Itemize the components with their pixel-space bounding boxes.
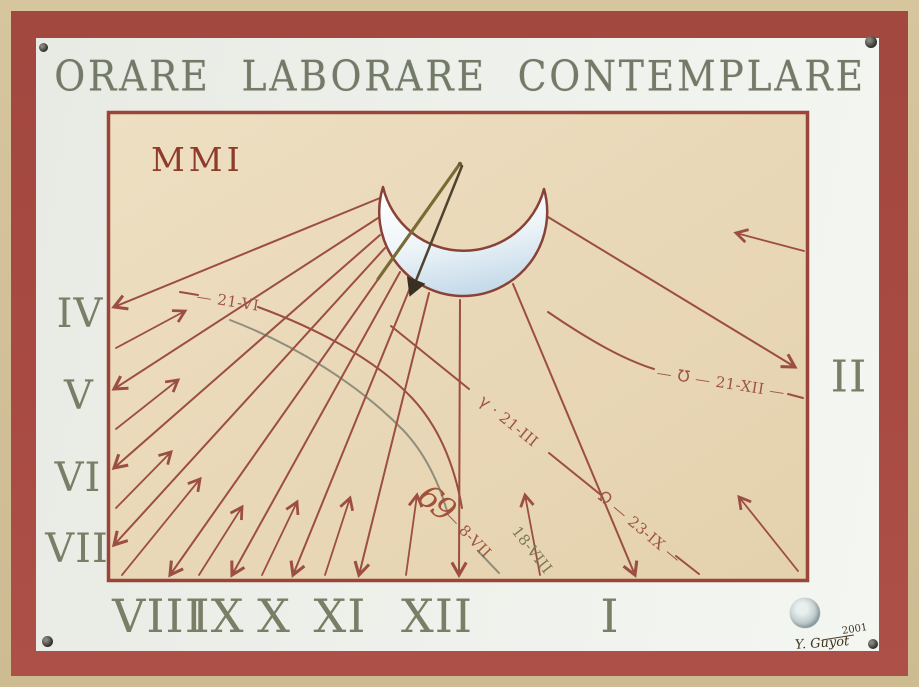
year-inscription: MMI (151, 140, 244, 179)
hour-numeral-VIII: VIII (112, 589, 204, 643)
label-dash: — (656, 363, 679, 384)
label-dash: — (195, 287, 218, 308)
dial-face-drawing (0, 0, 919, 687)
label-dash: — (763, 380, 786, 401)
hour-numeral-V: V (64, 373, 94, 419)
hour-numeral-I: I (600, 589, 619, 643)
hour-numeral-XII: XII (401, 589, 473, 643)
shell-medallion (790, 598, 820, 628)
hour-numeral-II: II (831, 352, 868, 403)
hour-numeral-VI: VI (55, 455, 102, 501)
hour-numeral-VII: VII (45, 526, 109, 572)
hour-numeral-X: X (257, 589, 291, 643)
hour-numeral-IX: IX (192, 589, 245, 643)
hour-numeral-XI: XI (314, 589, 367, 643)
hour-numeral-IV: IV (57, 291, 104, 337)
label-dash: — (689, 369, 718, 391)
sundial-painting: ORARE LABORARE CONTEMPLARE (0, 0, 919, 687)
gnomon-root (458, 162, 462, 166)
